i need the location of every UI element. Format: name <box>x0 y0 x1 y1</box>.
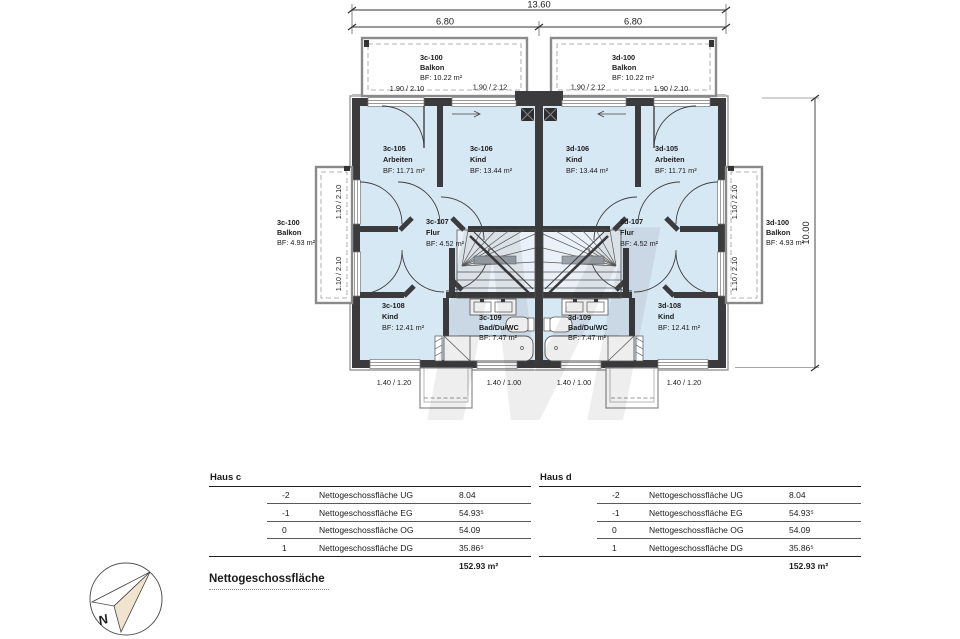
room-area: BF: 11.71 m² <box>655 166 697 175</box>
room-label-balkon-d-side: 3d-100 Balkon BF: 4.93 m² <box>766 218 805 247</box>
room-area: BF: 4.93 m² <box>766 238 805 247</box>
dim-left-label: 6.80 <box>436 17 454 27</box>
row-label: Nettogeschossfläche EG <box>649 508 789 518</box>
room-name: Kind <box>658 312 674 321</box>
table-haus-c: Haus c -2 Nettogeschossfläche UG 8.04 -1… <box>209 472 531 571</box>
table-row: -1 Nettogeschossfläche EG 54.93⁵ <box>597 504 861 521</box>
table-row: -2 Nettogeschossfläche UG 8.04 <box>597 487 861 504</box>
room-area: BF: 10.22 m² <box>420 73 463 82</box>
row-level: -2 <box>267 490 319 500</box>
win-dim: 1.10 / 2.10 <box>730 257 739 292</box>
room-id: 3c-106 <box>470 144 493 153</box>
party-wall-head <box>515 91 563 100</box>
win-dim: 1.90 / 2.10 <box>654 84 689 93</box>
win-dim: 1.90 / 2.12 <box>571 83 606 92</box>
compass-north-label: N <box>96 611 110 628</box>
row-level: 1 <box>597 543 649 553</box>
row-label: Nettogeschossfläche DG <box>319 543 459 553</box>
room-area: BF: 11.71 m² <box>383 166 425 175</box>
room-area: BF: 12.41 m² <box>658 323 701 332</box>
win-dim: 1.90 / 2.12 <box>473 83 508 92</box>
row-label: Nettogeschossfläche OG <box>649 525 789 535</box>
row-level: -2 <box>597 490 649 500</box>
room-id: 3d-108 <box>658 301 681 310</box>
room-name: Kind <box>382 312 398 321</box>
room-label-balkon-c-side: 3c-100 Balkon BF: 4.93 m² <box>277 218 316 247</box>
table-title-haus-c: Haus c <box>209 472 531 487</box>
room-id: 3d-106 <box>566 144 589 153</box>
room-area: BF: 4.93 m² <box>277 238 316 247</box>
table-row: 1 Nettogeschossfläche DG 35.86⁵ <box>597 539 861 555</box>
dimension-total: 13.60 <box>348 0 730 13</box>
dim-total-label: 13.60 <box>527 0 550 10</box>
room-name: Balkon <box>766 228 790 237</box>
row-level: -1 <box>267 508 319 518</box>
table-row: 1 Nettogeschossfläche DG 35.86⁵ <box>267 539 531 555</box>
row-label: Nettogeschossfläche DG <box>649 543 789 553</box>
row-value: 8.04 <box>459 490 531 500</box>
row-label: Nettogeschossfläche EG <box>319 508 459 518</box>
table-row: -2 Nettogeschossfläche UG 8.04 <box>267 487 531 504</box>
floor-plan-svg: 13.60 6.80 6.80 10.00 1.90 / 2.10 1.90 /… <box>0 0 960 470</box>
row-level: -1 <box>597 508 649 518</box>
table-row: 0 Nettogeschossfläche OG 54.09 <box>597 522 861 539</box>
room-name: Kind <box>470 155 486 164</box>
dim-right-label: 6.80 <box>624 17 642 27</box>
row-label: Nettogeschossfläche UG <box>649 490 789 500</box>
room-id: 3c-108 <box>382 301 405 310</box>
table-bottom-rule <box>539 556 861 557</box>
table-bottom-rule <box>209 556 531 557</box>
row-label: Nettogeschossfläche UG <box>319 490 459 500</box>
table-row: -1 Nettogeschossfläche EG 54.93⁵ <box>267 504 531 521</box>
room-id: 3d-100 <box>766 218 789 227</box>
watermark: M <box>422 168 663 470</box>
row-value: 8.04 <box>789 490 861 500</box>
room-id: 3c-105 <box>383 144 406 153</box>
row-value: 35.86⁵ <box>459 543 531 553</box>
table-haus-d: Haus d -2 Nettogeschossfläche UG 8.04 -1… <box>539 472 861 571</box>
table-row: 0 Nettogeschossfläche OG 54.09 <box>267 522 531 539</box>
room-id: 3c-100 <box>277 218 300 227</box>
row-level: 1 <box>267 543 319 553</box>
win-dim: 1.40 / 1.20 <box>667 378 702 387</box>
row-value: 35.86⁵ <box>789 543 861 553</box>
win-dim: 1.10 / 2.10 <box>730 185 739 220</box>
row-level: 0 <box>597 525 649 535</box>
room-id: 3d-100 <box>612 53 635 62</box>
row-value: 54.09 <box>789 525 861 535</box>
room-name: Balkon <box>420 63 444 72</box>
room-area: BF: 10.22 m² <box>612 73 655 82</box>
table-total: 152.93 m² <box>789 561 861 571</box>
room-name: Kind <box>566 155 582 164</box>
table-total: 152.93 m² <box>459 561 531 571</box>
room-name: Balkon <box>277 228 301 237</box>
row-label: Nettogeschossfläche OG <box>319 525 459 535</box>
win-dim: 1.40 / 1.20 <box>377 378 412 387</box>
row-level: 0 <box>267 525 319 535</box>
sheet-title: Nettogeschossfläche <box>209 573 329 590</box>
row-value: 54.09 <box>459 525 531 535</box>
room-name: Balkon <box>612 63 636 72</box>
table-title-haus-d: Haus d <box>539 472 861 487</box>
row-value: 54.93⁵ <box>459 508 531 518</box>
room-area: BF: 12.41 m² <box>382 323 425 332</box>
win-dim: 1.90 / 2.10 <box>390 84 425 93</box>
drawing-sheet: 13.60 6.80 6.80 10.00 1.90 / 2.10 1.90 /… <box>0 0 960 639</box>
win-dim: 1.10 / 2.10 <box>334 185 343 220</box>
compass: N <box>86 559 168 639</box>
room-name: Arbeiten <box>655 155 685 164</box>
win-dim: 1.10 / 2.10 <box>334 257 343 292</box>
room-name: Arbeiten <box>383 155 413 164</box>
row-value: 54.93⁵ <box>789 508 861 518</box>
room-id: 3c-100 <box>420 53 443 62</box>
room-id: 3d-105 <box>655 144 678 153</box>
